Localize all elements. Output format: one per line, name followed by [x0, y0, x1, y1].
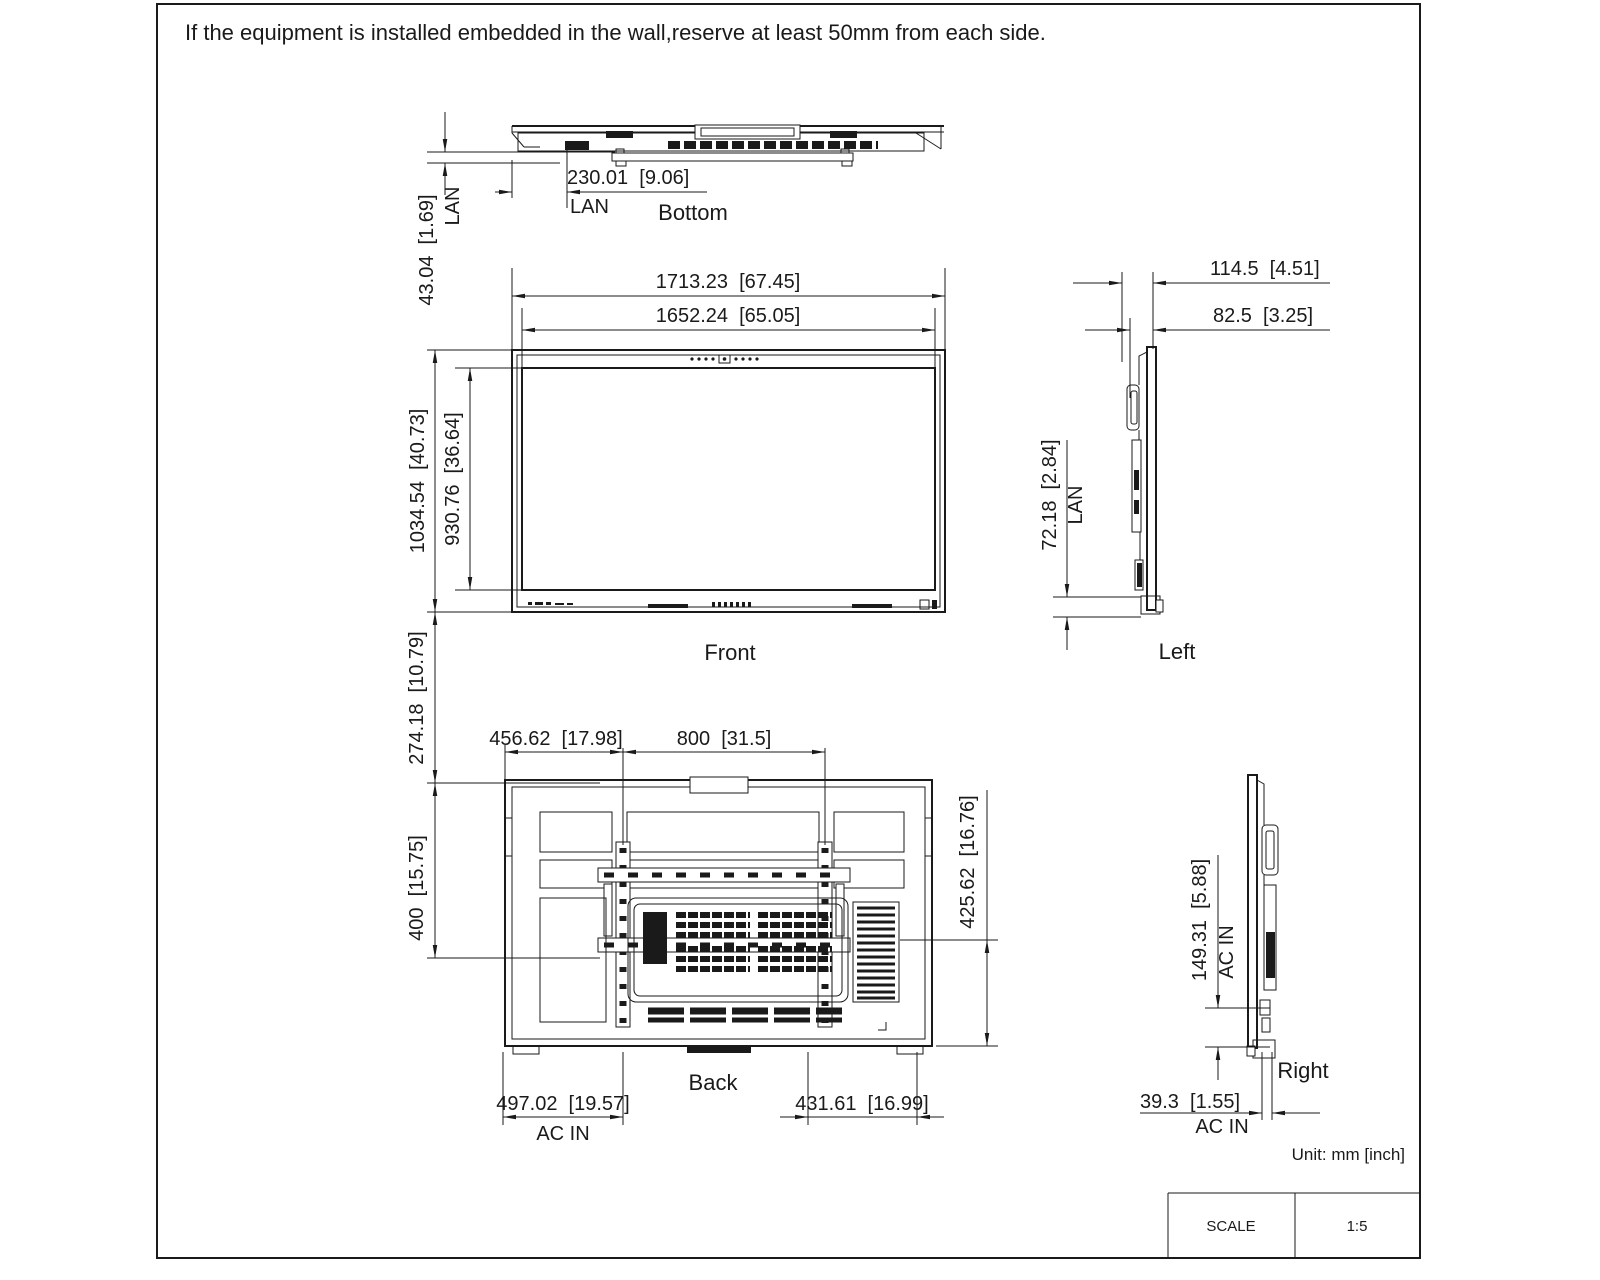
- dim-depth-total: 114.5 [4.51]: [1210, 258, 1320, 280]
- dim-top-offset: 274.18 [10.79]: [406, 631, 428, 764]
- dim-lan-offset: 230.01 [9.06]: [567, 167, 689, 189]
- dim-depth-body: 82.5 [3.25]: [1213, 305, 1313, 327]
- dim-ac-depth: 39.3 [1.55]: [1140, 1091, 1240, 1113]
- ac-in-side-label: AC IN: [1216, 925, 1238, 978]
- lan-port-label: LAN: [570, 196, 609, 218]
- drawing-border: [157, 4, 1420, 1258]
- dim-bottom-offset: 425.62 [16.76]: [957, 795, 979, 928]
- dim-overall-width: 1713.23 [67.45]: [656, 271, 801, 293]
- dim-vesa-height: 400 [15.75]: [406, 835, 428, 941]
- unit-note: Unit: mm [inch]: [1292, 1145, 1405, 1164]
- installation-note: If the equipment is installed embedded i…: [185, 20, 1046, 45]
- dim-lan-height: 72.18 [2.84]: [1039, 439, 1061, 550]
- bottom-view-drawing: [512, 125, 944, 166]
- left-view-drawing: [1127, 347, 1163, 614]
- dim-screen-width: 1652.24 [65.05]: [656, 305, 801, 327]
- back-view: 456.62 [17.98] 800 [31.5] 274.18 [10.79]…: [406, 612, 998, 1145]
- right-view-label: Right: [1277, 1058, 1328, 1083]
- left-view: 114.5 [4.51] 82.5 [3.25] 72.18 [2.84] LA…: [1039, 258, 1330, 664]
- back-view-drawing: [505, 777, 932, 1054]
- front-view-drawing: [512, 350, 945, 612]
- scale-value: 1:5: [1347, 1218, 1368, 1235]
- technical-drawing: If the equipment is installed embedded i…: [0, 0, 1600, 1280]
- left-view-label: Left: [1159, 639, 1196, 664]
- dim-overall-height: 1034.54 [40.73]: [407, 409, 429, 554]
- front-view-label: Front: [704, 640, 755, 665]
- dim-lan-depth: 43.04 [1.69]: [416, 194, 438, 305]
- left-view-dimensions: 114.5 [4.51] 82.5 [3.25] 72.18 [2.84] LA…: [1039, 258, 1330, 650]
- bottom-view-label: Bottom: [658, 200, 728, 225]
- drawing-page: If the equipment is installed embedded i…: [0, 0, 1600, 1280]
- front-view: 1713.23 [67.45] 1652.24 [65.05] 1034.54 …: [407, 268, 945, 665]
- dim-ac-offset-x: 497.02 [19.57]: [496, 1093, 629, 1115]
- right-view-drawing: [1247, 775, 1278, 1058]
- ac-in-label: AC IN: [536, 1123, 589, 1145]
- dim-ac-height: 149.31 [5.88]: [1189, 859, 1211, 981]
- title-block: Unit: mm [inch] SCALE 1:5: [1168, 1145, 1420, 1258]
- right-view: 149.31 [5.88] AC IN 39.3 [1.55] AC IN Ri…: [1140, 775, 1329, 1138]
- scale-label: SCALE: [1206, 1218, 1255, 1235]
- lan-side-label: LAN: [442, 187, 464, 226]
- back-view-label: Back: [689, 1070, 739, 1095]
- front-view-dimensions: 1713.23 [67.45] 1652.24 [65.05] 1034.54 …: [407, 268, 945, 612]
- dim-right-offset: 431.61 [16.99]: [795, 1093, 928, 1115]
- vent-grille: [853, 902, 899, 1002]
- dim-vesa-width: 800 [31.5]: [677, 728, 772, 750]
- right-view-dimensions: 149.31 [5.88] AC IN 39.3 [1.55] AC IN: [1140, 855, 1320, 1138]
- dim-vesa-offset-x: 456.62 [17.98]: [489, 728, 622, 750]
- dim-screen-height: 930.76 [36.64]: [442, 412, 464, 545]
- lan-side-label: LAN: [1065, 486, 1087, 525]
- ac-in-bottom-label: AC IN: [1195, 1116, 1248, 1138]
